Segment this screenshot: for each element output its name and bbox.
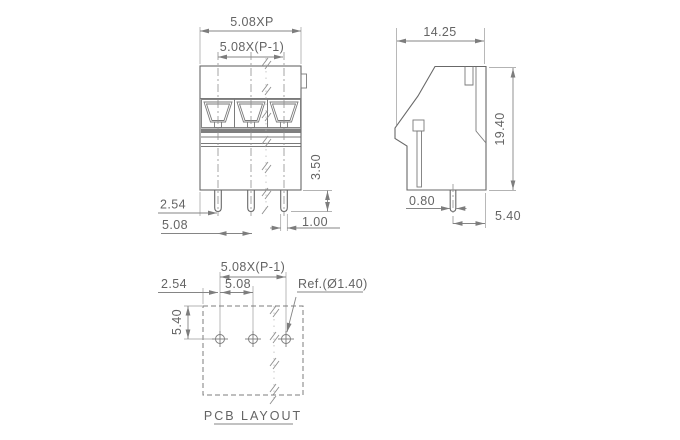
dim-pole-span: 5.08X(P-1) [220, 40, 284, 54]
front-right-tab [301, 74, 307, 88]
pcb-layout: 5.08X(P-1) 2.54 5.08 5.40 [158, 260, 368, 424]
front-view: 5.08XP 5.08X(P-1) [158, 15, 340, 234]
dim-hole-span: 5.08X(P-1) [221, 260, 285, 274]
front-body-outline [200, 66, 301, 190]
pcb-layout-caption: PCB LAYOUT [204, 409, 302, 423]
dim-pin-pitch: 5.08 [162, 218, 188, 232]
side-inner-slot [417, 131, 422, 187]
dim-hole-pitch: 5.08 [225, 277, 251, 291]
dim-pin-to-back: 5.40 [495, 209, 521, 223]
dim-height: 19.40 [493, 112, 507, 145]
dim-pin-protrusion: 3.50 [309, 154, 323, 180]
hole-ref-label: Ref.(Ø1.40) [298, 277, 368, 291]
pcb-holes [212, 331, 294, 347]
dim-depth: 14.25 [423, 25, 456, 39]
dim-pin-thickness: 0.80 [409, 194, 435, 208]
dim-pin-width: 1.00 [302, 215, 328, 229]
dim-row-offset: 5.40 [170, 309, 184, 335]
side-inner-face [476, 67, 486, 143]
dim-pin-offset: 2.54 [160, 198, 186, 212]
break-line [262, 58, 271, 214]
side-view: 14.25 19.40 0.80 5.40 [395, 25, 521, 228]
pcb-break-line [270, 306, 279, 404]
terminal-block-drawing: 5.08XP 5.08X(P-1) [0, 0, 680, 440]
side-top-slot [465, 67, 473, 86]
dim-total-width: 5.08XP [230, 15, 273, 29]
technical-drawing-page: 5.08XP 5.08X(P-1) [0, 0, 680, 440]
dim-edge-offset: 2.54 [161, 277, 187, 291]
side-slot-cap [413, 120, 424, 131]
